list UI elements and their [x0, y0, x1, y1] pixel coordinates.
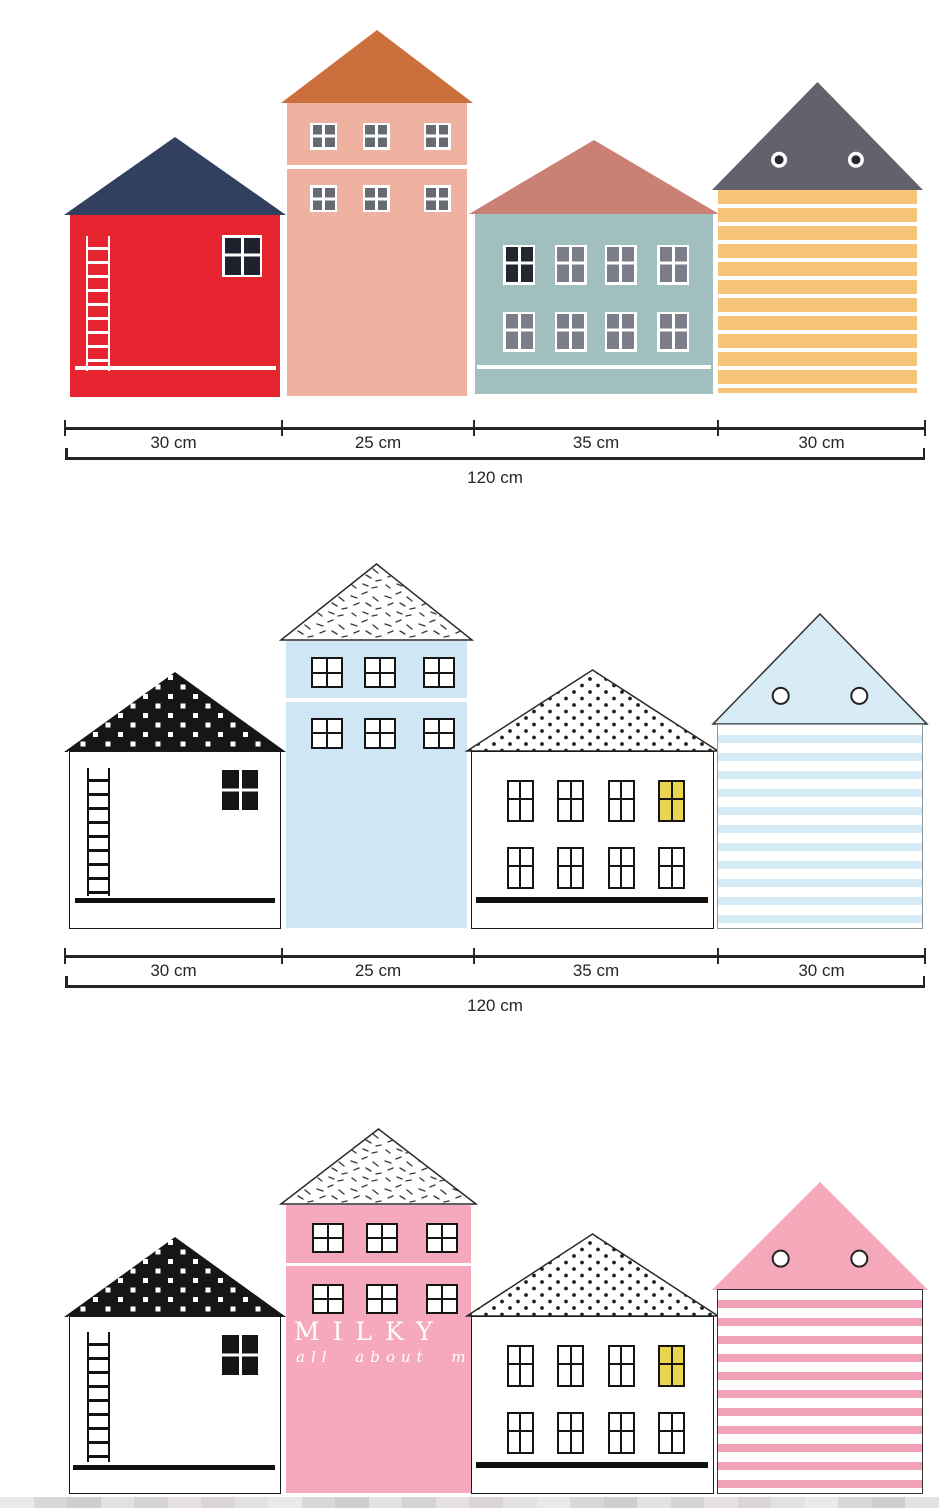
window [658, 847, 685, 889]
house-body [475, 214, 713, 394]
window-mullion-h [559, 1363, 582, 1365]
window-mullion-h [557, 262, 584, 265]
house-white-house-polkadot-roof [472, 669, 713, 928]
window-mullion-v [570, 849, 572, 887]
house-orange-striped-house-gray-roof [718, 82, 917, 393]
artifact-block [268, 1497, 302, 1508]
floor-line [286, 1263, 471, 1267]
window-mullion-h [660, 1363, 683, 1365]
window-mullion-v [620, 849, 622, 887]
roof [280, 563, 473, 641]
window-mullion-v [671, 1347, 673, 1385]
window-pane [557, 247, 584, 282]
window-mullion-h [428, 1298, 456, 1300]
house-body [472, 1317, 713, 1493]
artifact-block [134, 1497, 168, 1508]
artifact-block [0, 1497, 34, 1508]
house-white-house-black-dotted-roof [70, 672, 280, 928]
window-mullion-h [314, 1237, 342, 1239]
ruler-tick [717, 948, 720, 964]
window-mullion-h [509, 865, 532, 867]
house-blue-striped-house-blue-roof [718, 613, 922, 928]
segment-label: 35 cm [573, 433, 619, 453]
total-line [65, 985, 925, 988]
segment-label: 30 cm [798, 961, 844, 981]
artifact-block [838, 1497, 872, 1508]
window-mullion-v [620, 782, 622, 820]
artifact-block [738, 1497, 772, 1508]
window-pane [660, 314, 687, 349]
window [312, 1223, 344, 1253]
window [423, 657, 455, 688]
ruler-tick [473, 420, 476, 436]
window [557, 780, 584, 822]
window-mullion-h [366, 732, 394, 734]
house-salmon-house-orange-roof [287, 30, 467, 396]
floor-line [287, 165, 467, 169]
window-pane [313, 125, 335, 147]
window-mullion-h [557, 329, 584, 332]
window [366, 1284, 398, 1314]
total-label: 120 cm [467, 468, 523, 488]
roof [712, 82, 923, 190]
window [310, 123, 337, 150]
floor-line [286, 698, 467, 702]
window-mullion-v [619, 314, 622, 349]
house-body: MILKYall about my [286, 1205, 471, 1493]
ruler-line [65, 427, 925, 430]
window-mullion-h [425, 672, 453, 674]
roof [466, 1233, 719, 1317]
window-pane [607, 247, 634, 282]
window [608, 847, 635, 889]
house-body [286, 641, 467, 928]
baseline [476, 1462, 709, 1468]
window-mullion-v [519, 1347, 521, 1385]
window-pane [365, 188, 387, 210]
window [426, 1223, 458, 1253]
window [426, 1284, 458, 1314]
window-mullion-h [225, 254, 260, 257]
floor-line [73, 1465, 275, 1470]
window-mullion-v [570, 1347, 572, 1385]
window-mullion-h [222, 1353, 258, 1356]
window-mullion-v [570, 782, 572, 820]
window-mullion-h [610, 1363, 633, 1365]
house-body [472, 752, 713, 928]
window-pane [506, 247, 533, 282]
window-mullion-v [569, 247, 572, 282]
artifact-block [168, 1497, 202, 1508]
window [507, 1412, 534, 1454]
roof-circle-icon [773, 688, 789, 704]
total-label: 120 cm [467, 996, 523, 1016]
roof [466, 669, 719, 752]
segment-label: 30 cm [150, 961, 196, 981]
total-end-tick [923, 448, 926, 460]
window-mullion-h [425, 732, 453, 734]
window [424, 123, 451, 150]
roof [712, 1182, 928, 1290]
artifact-block [235, 1497, 269, 1508]
window [657, 312, 689, 352]
roof [712, 613, 928, 725]
window [507, 780, 534, 822]
ladder [87, 1332, 110, 1462]
window [424, 185, 451, 212]
window-mullion-v [672, 247, 675, 282]
window-mullion-h [660, 262, 687, 265]
house-red-house-navy-roof [70, 137, 280, 397]
artifact-block [201, 1497, 235, 1508]
watermark-subtitle: all about my [296, 1348, 471, 1366]
house-pink-house-sprinkle-roof: MILKYall about my [286, 1128, 471, 1493]
window-mullion-h [509, 1430, 532, 1432]
window-mullion-h [506, 262, 533, 265]
house-teal-house-rose-roof [475, 140, 713, 394]
window-mullion-v [518, 314, 521, 349]
artifact-block [469, 1497, 503, 1508]
segment-label: 25 cm [355, 433, 401, 453]
window [222, 770, 258, 810]
total-end-tick [65, 448, 68, 460]
window [423, 718, 455, 749]
ruler-tick [64, 420, 67, 436]
artifact-block [570, 1497, 604, 1508]
window [363, 123, 390, 150]
window-pane [365, 125, 387, 147]
ruler-tick [64, 948, 67, 964]
house-lightblue-house-sprinkle-roof [286, 563, 467, 928]
window [658, 780, 685, 822]
window-mullion-h [610, 1430, 633, 1432]
window-mullion-h [368, 1298, 396, 1300]
window [222, 235, 262, 277]
artifact-block [872, 1497, 906, 1508]
window-pane [225, 238, 260, 275]
total-line [65, 457, 925, 460]
house-body [718, 190, 917, 393]
ruler-line [65, 955, 925, 958]
roof [281, 30, 473, 103]
window [222, 1335, 258, 1375]
ruler-tick [473, 948, 476, 964]
artifact-block [302, 1497, 336, 1508]
window-mullion-h [366, 672, 394, 674]
window [605, 245, 637, 285]
window [364, 718, 396, 749]
window-pane [313, 188, 335, 210]
window-mullion-h [365, 197, 387, 200]
window-mullion-v [569, 314, 572, 349]
window-mullion-v [671, 849, 673, 887]
window-mullion-v [672, 314, 675, 349]
house-white-house-black-dotted-roof [70, 1237, 280, 1493]
artifact-block [67, 1497, 101, 1508]
floor-line [75, 898, 275, 903]
window-mullion-h [610, 865, 633, 867]
ladder [86, 236, 110, 371]
ladder [87, 768, 110, 896]
segment-label: 35 cm [573, 961, 619, 981]
window-mullion-v [519, 1414, 521, 1452]
window-pane [426, 188, 448, 210]
window [658, 1345, 685, 1387]
artifact-block [537, 1497, 571, 1508]
artifact-block [34, 1497, 68, 1508]
window-mullion-v [518, 247, 521, 282]
segment-label: 25 cm [355, 961, 401, 981]
window [605, 312, 637, 352]
artifact-block [604, 1497, 638, 1508]
artifact-block [402, 1497, 436, 1508]
artifact-block [637, 1497, 671, 1508]
baseline [477, 365, 710, 369]
window-mullion-h [559, 865, 582, 867]
window-mullion-h [660, 865, 683, 867]
window [507, 1345, 534, 1387]
house-body [287, 103, 467, 396]
window-mullion-h [313, 672, 341, 674]
window [557, 847, 584, 889]
window [364, 657, 396, 688]
window-mullion-v [519, 782, 521, 820]
window-mullion-v [620, 1414, 622, 1452]
window [608, 1412, 635, 1454]
roof [64, 137, 286, 215]
house-pink-striped-house-pink-roof [718, 1182, 922, 1493]
window [608, 780, 635, 822]
window-mullion-h [660, 1430, 683, 1432]
window-pane [607, 314, 634, 349]
window-mullion-h [426, 197, 448, 200]
window [555, 312, 587, 352]
window-mullion-h [368, 1237, 396, 1239]
segment-label: 30 cm [150, 433, 196, 453]
artifact-block [704, 1497, 738, 1508]
artifact-block [905, 1497, 939, 1508]
artifact-block [503, 1497, 537, 1508]
artifact-block [671, 1497, 705, 1508]
window-mullion-h [365, 135, 387, 138]
window-mullion-v [671, 1414, 673, 1452]
roof [64, 672, 286, 752]
window-mullion-h [428, 1237, 456, 1239]
window-mullion-h [559, 1430, 582, 1432]
window [657, 245, 689, 285]
window [555, 245, 587, 285]
window [363, 185, 390, 212]
window [557, 1412, 584, 1454]
house-body [718, 725, 922, 928]
artifact-block [771, 1497, 805, 1508]
window-pane [660, 247, 687, 282]
window-mullion-h [313, 197, 335, 200]
roof [469, 140, 719, 214]
window [608, 1345, 635, 1387]
window-mullion-h [314, 1298, 342, 1300]
window-mullion-h [559, 798, 582, 800]
window-mullion-v [671, 782, 673, 820]
window-pane [426, 125, 448, 147]
artifact-block [369, 1497, 403, 1508]
roof-circle-icon [851, 688, 867, 704]
house-body [70, 215, 280, 397]
house-body [718, 1290, 922, 1493]
window [312, 1284, 344, 1314]
window-mullion-v [619, 247, 622, 282]
window [366, 1223, 398, 1253]
window-mullion-h [313, 732, 341, 734]
window-mullion-h [509, 798, 532, 800]
houses-dimension-diagram: MILKYall about my30 cm25 cm35 cm30 cm120… [0, 0, 939, 1508]
window-pane [557, 314, 584, 349]
window-mullion-h [426, 135, 448, 138]
window [311, 657, 343, 688]
window-mullion-h [506, 329, 533, 332]
watermark-title: MILKY [294, 1317, 446, 1346]
roof-circle-icon [773, 1251, 789, 1267]
window-mullion-h [313, 135, 335, 138]
window-mullion-h [660, 329, 687, 332]
window [310, 185, 337, 212]
window [503, 312, 535, 352]
window [503, 245, 535, 285]
roof-circle-icon [851, 1251, 867, 1267]
ruler-tick [281, 948, 284, 964]
total-end-tick [923, 976, 926, 988]
artifact-block [436, 1497, 470, 1508]
ruler-tick [924, 948, 927, 964]
window-mullion-h [610, 798, 633, 800]
segment-label: 30 cm [798, 433, 844, 453]
ruler-tick [717, 420, 720, 436]
ruler-tick [281, 420, 284, 436]
window-mullion-v [570, 1414, 572, 1452]
window [658, 1412, 685, 1454]
house-body [70, 1317, 280, 1493]
ruler-tick [924, 420, 927, 436]
window-pane [506, 314, 533, 349]
window-mullion-v [620, 1347, 622, 1385]
window [507, 847, 534, 889]
roof [64, 1237, 286, 1317]
window-mullion-h [660, 798, 683, 800]
window [557, 1345, 584, 1387]
house-body [70, 752, 280, 928]
window-mullion-h [607, 329, 634, 332]
total-end-tick [65, 976, 68, 988]
artifact-block [335, 1497, 369, 1508]
window [311, 718, 343, 749]
roof [280, 1128, 477, 1205]
artifact-block [101, 1497, 135, 1508]
baseline [476, 897, 709, 903]
bottom-artifact-strip [0, 1497, 939, 1508]
window-mullion-h [509, 1363, 532, 1365]
window-mullion-h [607, 262, 634, 265]
artifact-block [805, 1497, 839, 1508]
house-white-house-polkadot-roof [472, 1233, 713, 1493]
window-mullion-v [519, 849, 521, 887]
window-mullion-h [222, 788, 258, 791]
